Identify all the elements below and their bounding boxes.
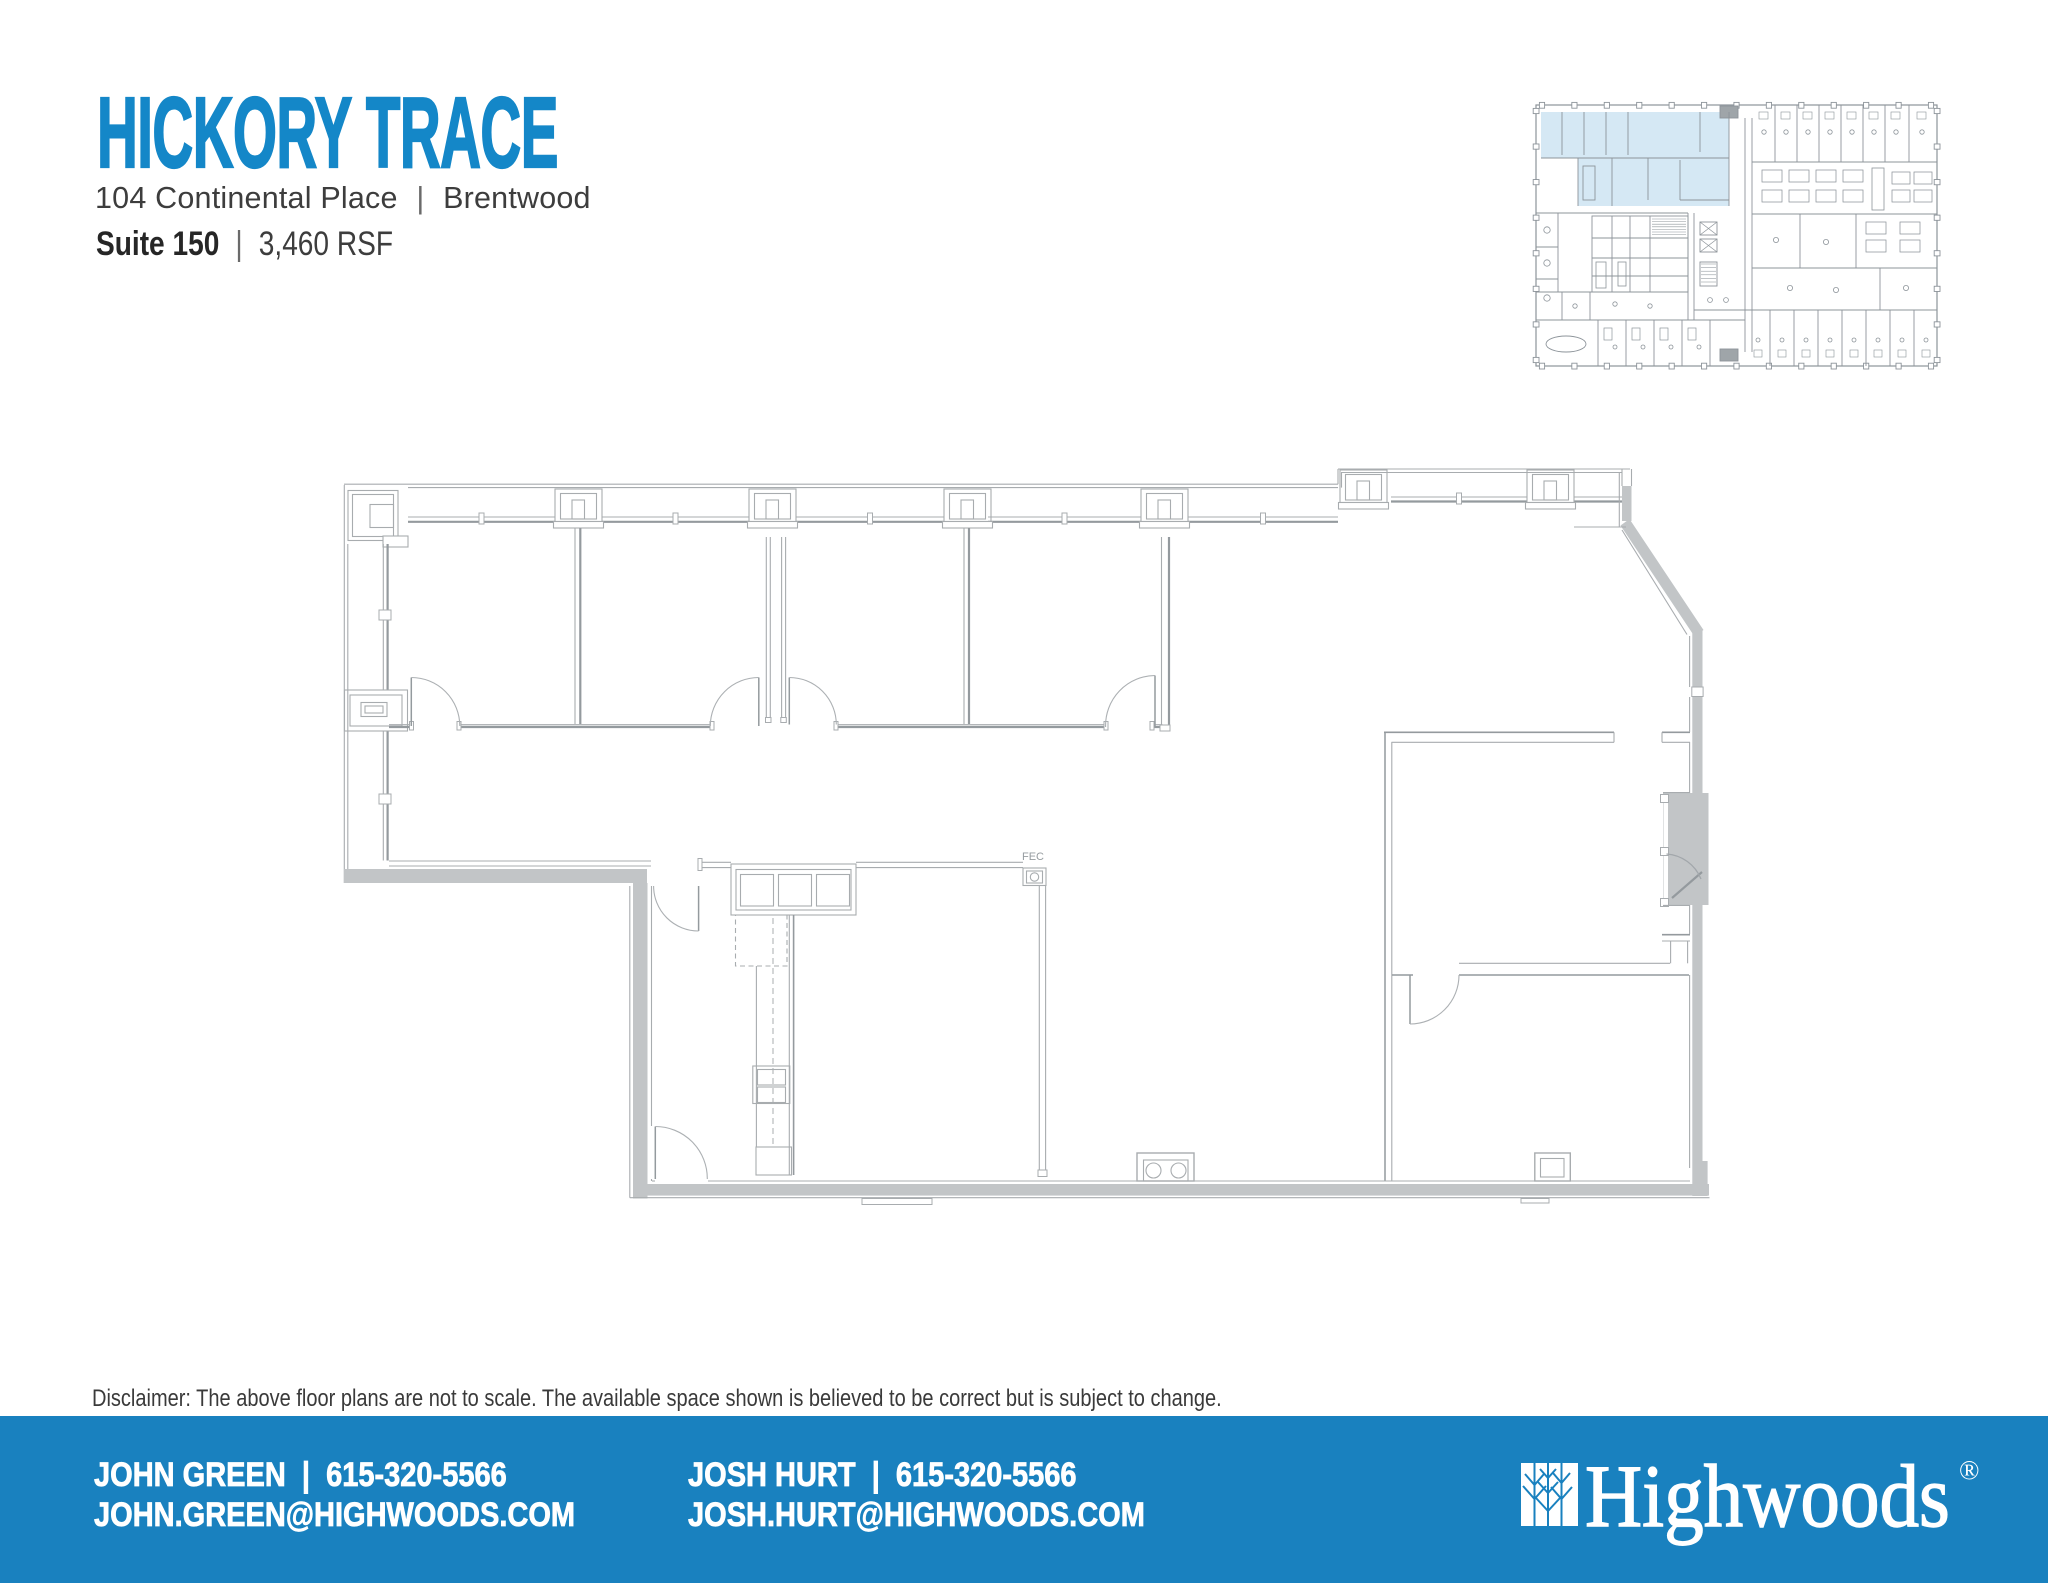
svg-text:FEC: FEC: [1022, 851, 1044, 863]
